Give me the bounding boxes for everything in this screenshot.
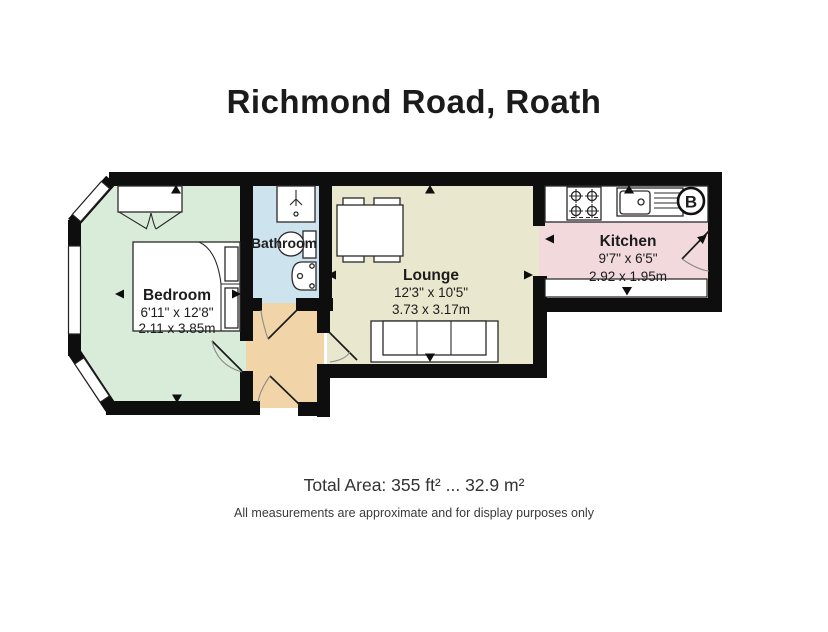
wall-top bbox=[109, 172, 722, 186]
bedroom-dim-imperial: 6'11" x 12'8" bbox=[140, 305, 213, 320]
basin-drain bbox=[298, 274, 303, 279]
floor-hallway bbox=[246, 303, 324, 408]
total-area-text: Total Area: 355 ft² ... 32.9 m² bbox=[0, 475, 828, 496]
wall-bottom-left bbox=[106, 401, 260, 415]
wall-hall-lounge bbox=[317, 311, 330, 333]
floorplan-drawing: B bbox=[0, 0, 828, 632]
bedroom-dim-metric: 2.11 x 3.85m bbox=[138, 321, 215, 336]
wardrobe bbox=[118, 186, 182, 212]
bedroom-label: Bedroom bbox=[143, 287, 211, 304]
disclaimer-text: All measurements are approximate and for… bbox=[0, 506, 828, 520]
sofa-seats bbox=[383, 321, 486, 355]
basin-tap bbox=[310, 284, 314, 288]
wall-kitchen-lounge-upper bbox=[533, 180, 545, 226]
dining-table bbox=[337, 205, 403, 256]
kitchen-dim-metric: 2.92 x 1.95m bbox=[589, 269, 667, 284]
floorplan-page: Richmond Road, Roath bbox=[0, 0, 828, 632]
wall-kitchen-bottom bbox=[533, 298, 722, 312]
wall-bath-bottom-left bbox=[240, 298, 262, 311]
kitchen-sink-basin bbox=[620, 191, 650, 214]
hob bbox=[567, 187, 601, 220]
lounge-label: Lounge bbox=[403, 267, 459, 284]
kitchen-label: Kitchen bbox=[600, 233, 657, 250]
wall-right bbox=[708, 172, 722, 312]
lounge-dim-imperial: 12'3" x 10'5" bbox=[394, 285, 468, 300]
kitchen-sink-drain bbox=[638, 199, 644, 205]
boiler-label: B bbox=[685, 193, 697, 212]
bay-window-left bbox=[69, 246, 81, 334]
bathroom-label: Bathroom bbox=[251, 235, 317, 251]
wall-bedroom-right-upper bbox=[240, 172, 253, 341]
shower-drain bbox=[294, 212, 298, 216]
wall-bath-lounge bbox=[319, 172, 332, 311]
wall-bedroom-right-lower bbox=[240, 371, 253, 415]
wall-hall-bottom-right bbox=[298, 402, 330, 416]
basin-tap bbox=[310, 264, 314, 268]
kitchen-dim-imperial: 9'7" x 6'5" bbox=[598, 251, 657, 266]
bed-pillow bbox=[225, 247, 238, 281]
lounge-dim-metric: 3.73 x 3.17m bbox=[392, 302, 470, 317]
wall-lounge-bottom bbox=[317, 364, 547, 378]
